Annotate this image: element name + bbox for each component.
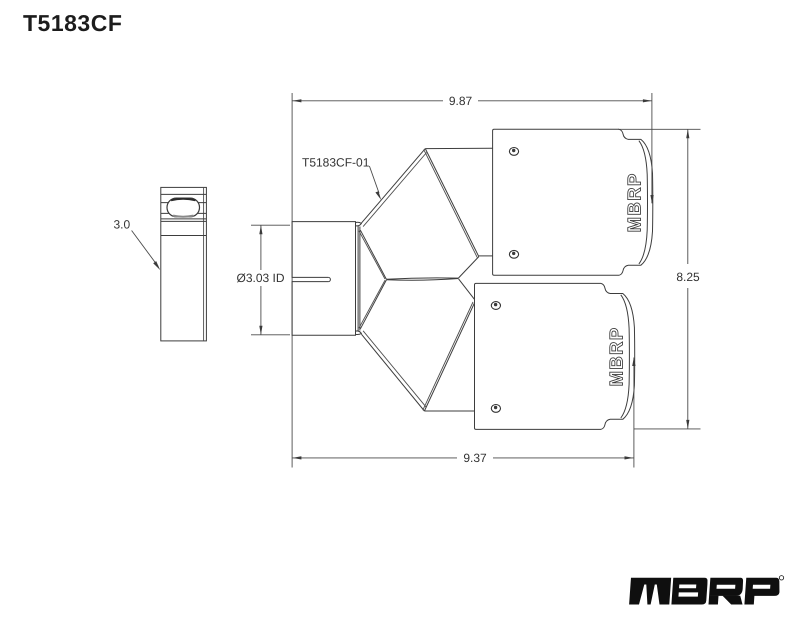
svg-text:8.25: 8.25 <box>676 270 700 284</box>
svg-text:T5183CF: T5183CF <box>23 10 122 36</box>
svg-text:Ø3.03 ID: Ø3.03 ID <box>237 271 285 285</box>
svg-text:T5183CF-01: T5183CF-01 <box>302 156 370 170</box>
svg-text:9.37: 9.37 <box>463 451 487 465</box>
svg-text:3.0: 3.0 <box>114 218 131 232</box>
svg-text:9.87: 9.87 <box>449 94 473 108</box>
